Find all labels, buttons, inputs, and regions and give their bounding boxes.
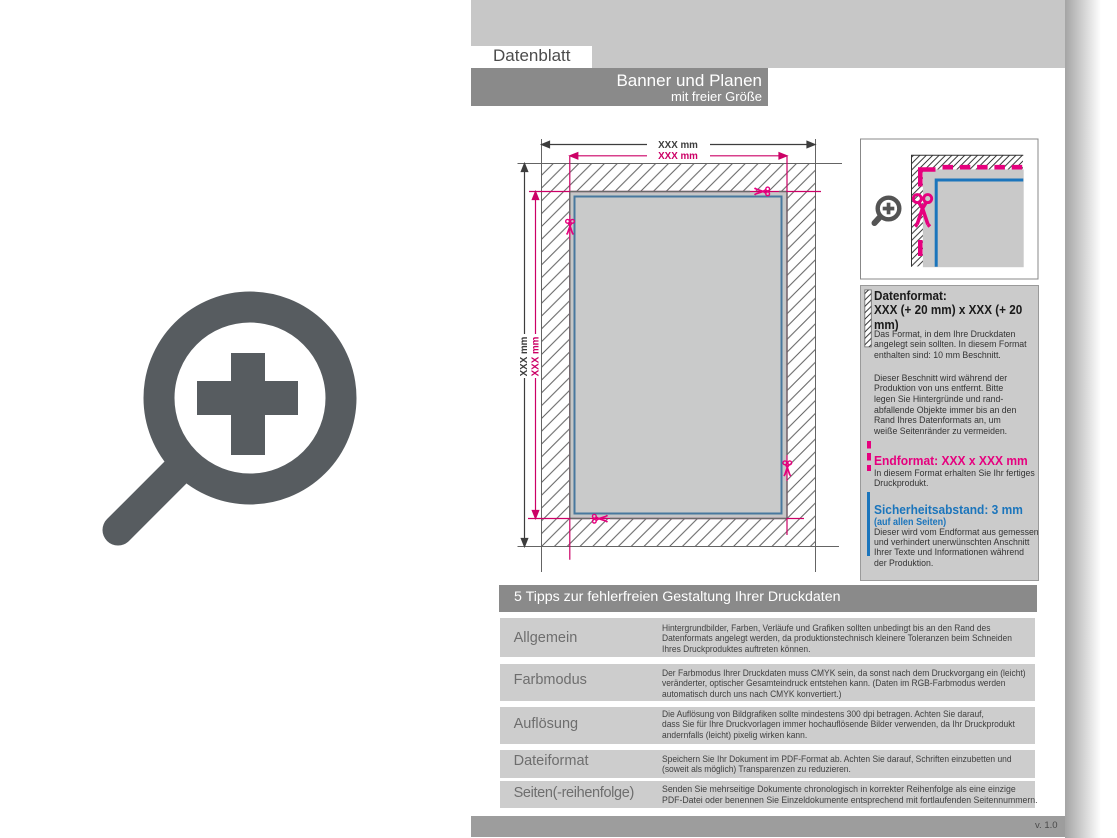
svg-text:XXX mm: XXX mm bbox=[531, 336, 542, 376]
svg-text:XXX mm: XXX mm bbox=[658, 151, 698, 162]
svg-text:XXX mm: XXX mm bbox=[519, 336, 530, 376]
svg-text:XXX mm: XXX mm bbox=[658, 140, 698, 151]
